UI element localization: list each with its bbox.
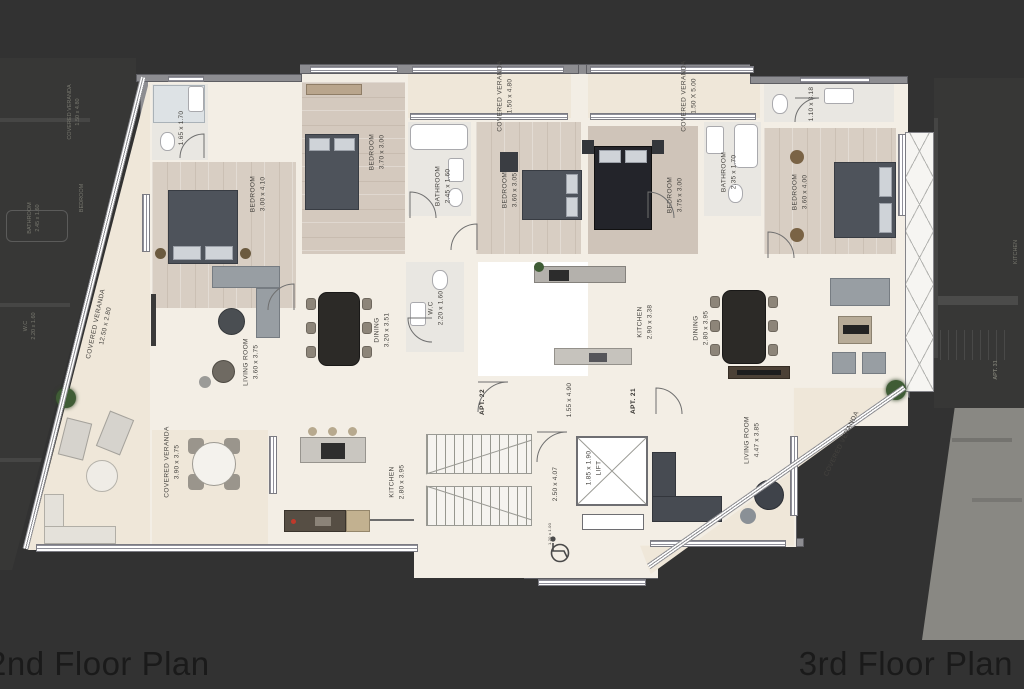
bathroom-tr-floor: [764, 84, 894, 122]
apartment-label-apt21: APT. 21: [629, 388, 639, 414]
toilet: [772, 94, 788, 114]
room-label-veranda-bl: COVERED VERANDA3.90 x 3.75: [162, 426, 182, 497]
preview-room-label: BEDROOM: [78, 184, 86, 212]
bar-stool: [308, 427, 317, 436]
facade-step-right: [750, 50, 910, 78]
adjacent-plan-right-lower: [922, 408, 1024, 640]
nightstand: [155, 248, 166, 259]
room-label-kitchen21: KITCHEN2.90 x 3.38: [635, 305, 655, 339]
patio-table: [192, 442, 236, 486]
hall-dims-apt22: 1.55 x 4.90: [565, 383, 575, 417]
kitchen-counter: [534, 266, 626, 283]
pouf: [790, 228, 804, 242]
room-label-veranda-t2: COVERED VERANDA1.50 X 5.00: [679, 60, 699, 131]
bar-stool: [348, 427, 357, 436]
window: [590, 113, 756, 120]
room-label-bathroom3: BATHROOM2.35 x 1.70: [719, 152, 739, 192]
dining-chair: [710, 296, 720, 308]
adjacent-plan-right: [934, 78, 1024, 408]
tv-panel: [151, 294, 156, 346]
preview-room-label: BATHROOM2.45 x 1.60: [26, 202, 43, 233]
tv-console: [728, 366, 790, 379]
dining-chair: [710, 344, 720, 356]
window: [410, 113, 568, 120]
window: [168, 76, 204, 82]
preview-stairs: [940, 330, 1012, 360]
pouf: [199, 376, 211, 388]
preview-counter: [938, 296, 1018, 305]
window: [269, 436, 277, 494]
tv: [737, 370, 781, 375]
cabinet: [838, 316, 872, 344]
veranda-t1-floor: [408, 74, 571, 118]
pouf: [740, 508, 756, 524]
sink: [188, 86, 204, 112]
outdoor-sofa: [44, 526, 116, 544]
room-label-bedroom5: BEDROOM3.60 x 4.00: [790, 174, 810, 210]
room-label-dining21: DINING2.80 x 3.95: [691, 311, 711, 345]
plant: [534, 262, 544, 272]
room-label-bedroom1: BEDROOM3.00 x 4.10: [248, 176, 268, 212]
sofa-chaise: [256, 288, 280, 338]
toilet: [432, 270, 448, 290]
armchair: [832, 352, 856, 374]
island-sink: [589, 353, 607, 362]
nightstand: [582, 140, 594, 154]
right-facade-glazing: [905, 132, 934, 392]
nightstand: [652, 140, 664, 154]
preview-room-label: COVERED VERANDA1.50 x 4.80: [66, 84, 83, 139]
armchair: [212, 360, 235, 383]
dining-chair: [306, 346, 316, 358]
bed-double: [305, 134, 359, 210]
room-label-bathroom2: BATHROOM2.45 x 1.60: [433, 166, 453, 206]
dining-table: [722, 290, 766, 364]
room-label-wc: W.C2.20 x 1.60: [426, 291, 446, 325]
kitchen-island: [554, 348, 632, 365]
counter-edge: [370, 519, 414, 521]
window: [590, 66, 754, 73]
caption-3rd-floor-plan: 3rd Floor Plan: [799, 645, 1013, 683]
sofa: [830, 278, 890, 306]
room-label-bedroom4: BEDROOM3.75 x 3.00: [665, 177, 685, 213]
lift-label: 1.85 x 1.90LIFT: [584, 451, 604, 485]
bed-double: [594, 146, 652, 230]
pouf: [790, 150, 804, 164]
dresser: [306, 84, 362, 95]
preview-wall: [934, 118, 938, 358]
dining-chair: [306, 322, 316, 334]
window: [800, 77, 870, 83]
kitchen-island: [300, 437, 366, 463]
dining-chair: [362, 322, 372, 334]
dining-chair: [710, 320, 720, 332]
window: [412, 66, 564, 73]
bed-double: [522, 170, 582, 220]
dining-chair: [362, 346, 372, 358]
stove-burner: [291, 519, 296, 524]
preview-wall: [0, 458, 46, 462]
sink: [706, 126, 724, 154]
counter-sink: [315, 517, 331, 526]
room-label-bedroom2: BEDROOM3.70 x 3.00: [367, 134, 387, 170]
sink: [824, 88, 854, 104]
facade-step-left: [136, 50, 300, 76]
dining-chair: [768, 344, 778, 356]
window: [36, 544, 418, 552]
bed-double: [834, 162, 896, 238]
tv: [843, 325, 869, 334]
room-label-living22: LIVING ROOM3.60 x 3.75: [241, 338, 261, 386]
window: [898, 134, 906, 216]
dining-chair: [768, 296, 778, 308]
window: [790, 436, 798, 516]
preview-wall: [0, 303, 70, 307]
room-label-dining22: DINING3.20 x 3.51: [372, 313, 392, 347]
window: [650, 540, 786, 547]
island-hob: [321, 443, 345, 459]
toilet: [160, 132, 175, 151]
room-label-bath-tl: 1.65 x 1.70: [177, 111, 187, 145]
bed-double: [168, 190, 238, 264]
bathtub: [410, 124, 468, 150]
entrance-step: [538, 579, 646, 586]
armchair: [862, 352, 886, 374]
veranda-t2-floor: [588, 74, 760, 118]
lift-lobby-slot: [582, 514, 644, 530]
apartment-label-apt22: APT. 22: [478, 389, 488, 415]
counter-hob: [549, 270, 569, 281]
dining-table: [318, 292, 360, 366]
floor-plan-canvas: COVERED VERANDA1.50 x 4.80 BATHROOM2.45 …: [0, 0, 1024, 689]
counter-cabinet: [346, 510, 370, 532]
nightstand: [500, 152, 518, 172]
kitchen-counter: [284, 510, 346, 532]
dining-chair: [362, 298, 372, 310]
dining-chair: [768, 320, 778, 332]
accessible-wc-dims: 1.20 x 1.00: [547, 523, 553, 545]
room-label-veranda-t1: COVERED VERANDA1.50 x 4.80: [495, 60, 515, 131]
room-label-kitchen22: KITCHEN2.80 x 3.95: [387, 465, 407, 499]
preview-room-label: W.C2.20 x 1.60: [22, 312, 39, 339]
nightstand: [240, 248, 251, 259]
sofa: [212, 266, 280, 288]
room-label-bath-tr: 1.10 x 3.18: [807, 87, 817, 121]
sink: [410, 302, 426, 326]
outdoor-rug: [86, 460, 118, 492]
room-label-living21: LIVING ROOM4.47 x 3.85: [742, 416, 762, 464]
stair-hall-dims: 2.50 x 4.07: [551, 467, 561, 501]
dining-chair: [306, 298, 316, 310]
caption-2nd-floor-plan: 2nd Floor Plan: [0, 645, 210, 683]
staircase-lower-flight: [426, 486, 532, 526]
coffee-table: [218, 308, 245, 335]
staircase-upper-flight: [426, 434, 532, 474]
room-label-bedroom3: BEDROOM3.60 x 3.05: [500, 172, 520, 208]
bar-stool: [328, 427, 337, 436]
preview-room-label: KITCHEN: [1012, 240, 1020, 264]
preview-apartment-label: APT. 31: [992, 360, 1000, 380]
wall: [136, 74, 302, 82]
window: [310, 66, 398, 73]
window: [142, 194, 150, 252]
